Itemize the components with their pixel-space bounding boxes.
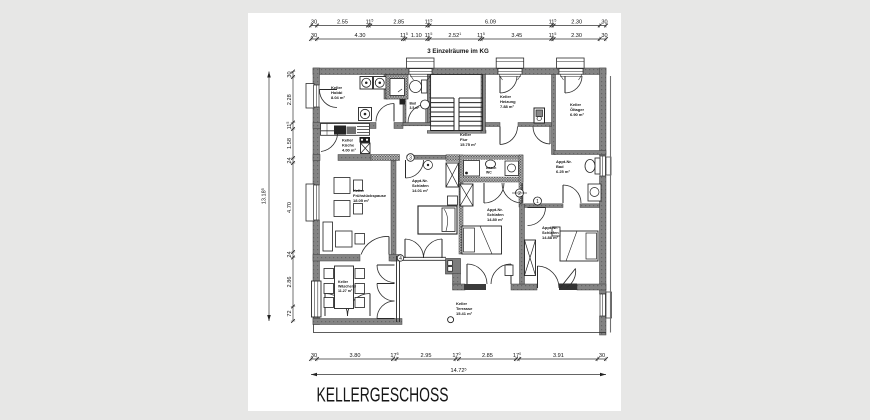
svg-text:14.725: 14.725 [451, 367, 467, 374]
svg-text:2.30: 2.30 [571, 19, 582, 25]
svg-text:13.185: 13.185 [261, 188, 268, 204]
svg-text:30: 30 [601, 33, 607, 39]
svg-text:2.28: 2.28 [287, 94, 293, 105]
svg-text:30: 30 [599, 353, 605, 359]
svg-text:24: 24 [287, 251, 293, 257]
svg-text:30: 30 [287, 71, 293, 77]
svg-text:6.09: 6.09 [485, 19, 496, 25]
svg-text:KELLERGESCHOSS: KELLERGESCHOSS [317, 384, 449, 407]
svg-text:3.91: 3.91 [553, 353, 564, 359]
svg-text:30: 30 [311, 33, 317, 39]
svg-text:3: 3 [409, 155, 412, 161]
svg-text:Appt-Nr. Schlafen 14.88 m²: Appt-Nr. Schlafen 14.88 m² [542, 225, 560, 240]
svg-text:72: 72 [287, 310, 293, 316]
svg-text:24: 24 [287, 157, 293, 163]
svg-text:1: 1 [536, 199, 539, 205]
svg-text:1.58: 1.58 [287, 138, 293, 149]
svg-text:2.85: 2.85 [393, 19, 404, 25]
svg-text:2.55: 2.55 [337, 19, 348, 25]
svg-text:Appt-Nr. Schlafen 14.01 m²: Appt-Nr. Schlafen 14.01 m² [412, 178, 430, 193]
svg-text:2.85: 2.85 [482, 353, 493, 359]
svg-text:3 Einzelräume im KG: 3 Einzelräume im KG [427, 48, 489, 55]
svg-text:3.80: 3.80 [350, 353, 361, 359]
svg-text:30: 30 [311, 353, 317, 359]
svg-text:4.70: 4.70 [287, 202, 293, 213]
svg-text:30: 30 [601, 19, 607, 25]
svg-text:1.10: 1.10 [411, 33, 422, 39]
svg-text:2.30: 2.30 [571, 33, 582, 39]
svg-text:2: 2 [518, 191, 521, 197]
svg-text:4.30: 4.30 [355, 33, 366, 39]
svg-text:2.95: 2.95 [421, 353, 432, 359]
svg-text:3.45: 3.45 [511, 33, 522, 39]
svg-text:30: 30 [311, 19, 317, 25]
svg-text:Appt-Nr. Schlafen 14.80 m²: Appt-Nr. Schlafen 14.80 m² [487, 207, 505, 222]
svg-text:4: 4 [399, 256, 402, 262]
svg-text:2.86: 2.86 [287, 277, 293, 288]
